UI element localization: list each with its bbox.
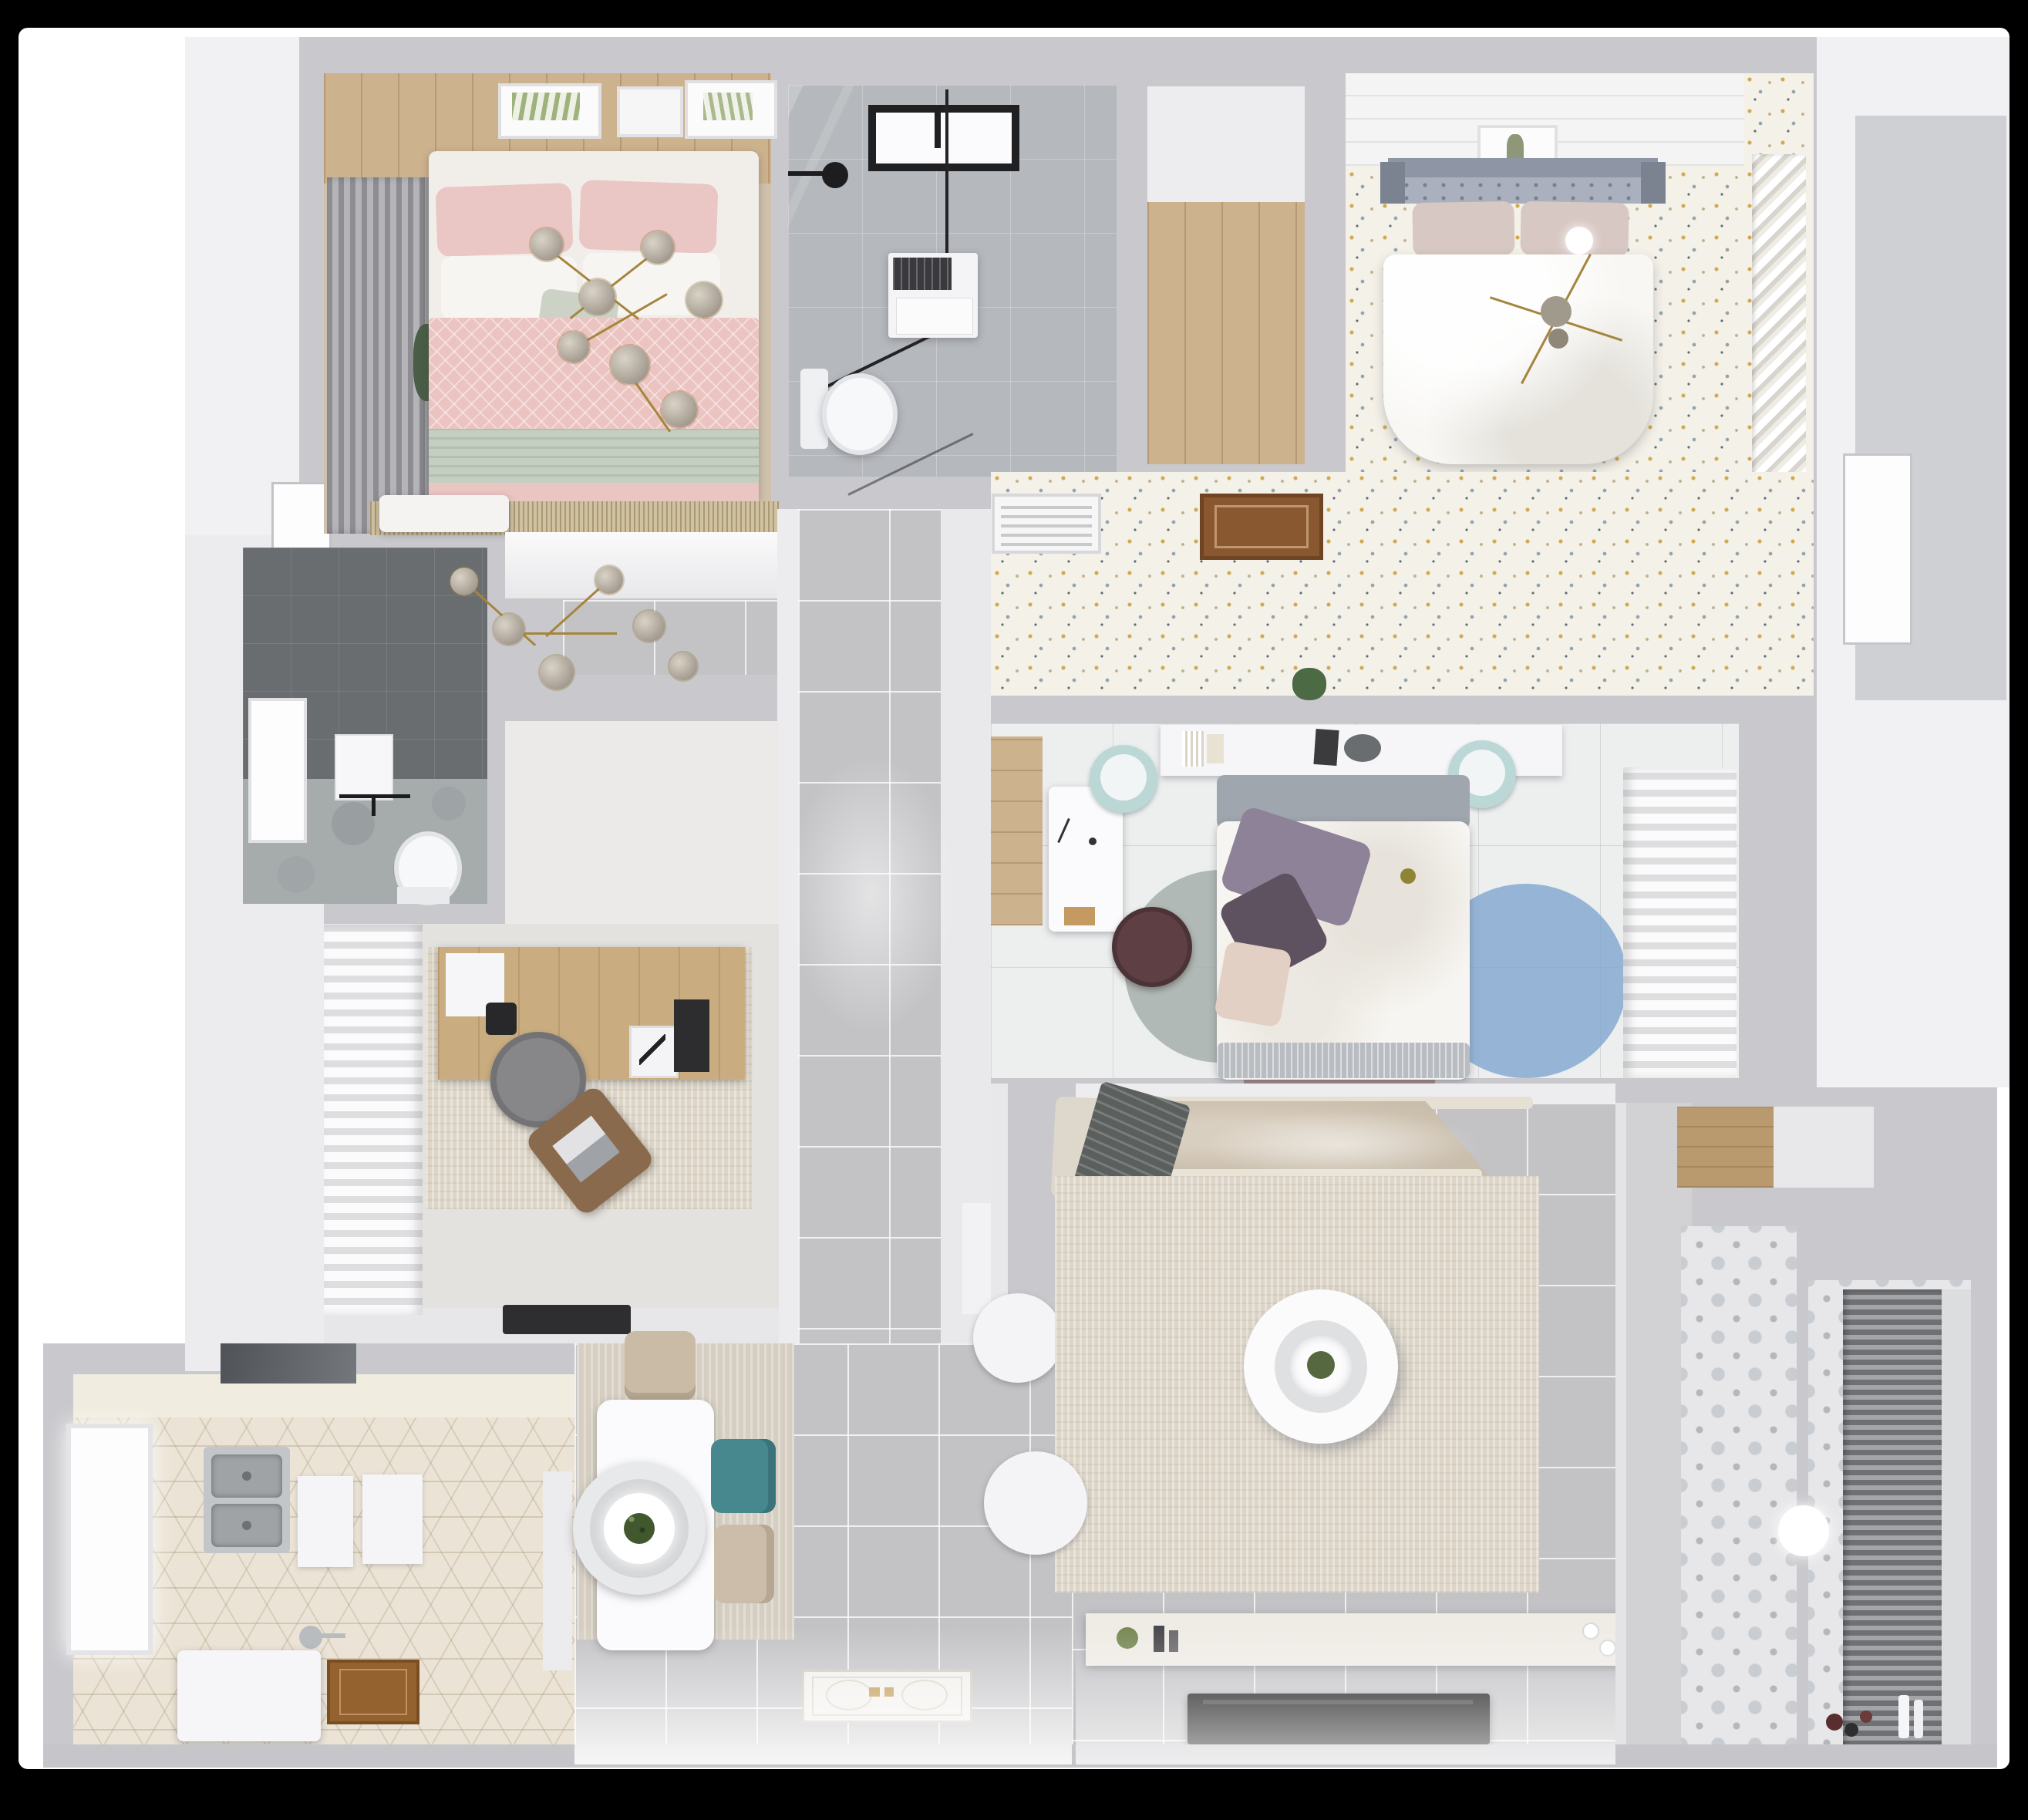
decor-green-plate xyxy=(1117,1627,1138,1649)
kitchen-window xyxy=(66,1424,153,1655)
bedroom-door-leaf xyxy=(962,1203,993,1314)
floor-motif-4 xyxy=(278,856,315,893)
vent-slats xyxy=(1001,501,1092,546)
decor-bottle-2 xyxy=(1169,1630,1178,1652)
washer-control-panel xyxy=(893,258,952,290)
wall-art-leaves xyxy=(512,93,580,120)
room-vestibule xyxy=(991,472,1814,696)
wall-art-frame-2 xyxy=(617,86,683,137)
duvet-gold-dot xyxy=(1400,868,1416,884)
blinds-light-edge xyxy=(1942,1289,1971,1764)
sink-drain-2 xyxy=(242,1521,251,1530)
venetian-blinds xyxy=(1843,1289,1942,1764)
desk-wood-box xyxy=(1064,907,1095,925)
bathroom-window xyxy=(868,105,1019,171)
middle-bed-foot xyxy=(1217,1043,1470,1078)
middle-wood-strip xyxy=(991,736,1043,925)
middle-plant xyxy=(1292,668,1326,700)
white-bottle-2 xyxy=(1914,1700,1923,1738)
sink-basin-2 xyxy=(211,1504,282,1547)
shower-fixture-drop xyxy=(372,794,376,816)
tv-reflection xyxy=(1203,1700,1473,1704)
shower-toilet-tank xyxy=(397,887,450,904)
shelf-bowl xyxy=(1344,734,1381,762)
dark-book xyxy=(1313,729,1339,766)
island-counter xyxy=(177,1650,321,1741)
entry-wood-floor xyxy=(1147,202,1305,464)
hatch-panel-line xyxy=(1214,505,1309,548)
exterior-door-leaf xyxy=(1843,453,1912,645)
camera-icon xyxy=(486,1003,517,1035)
round-coffee-table xyxy=(1244,1289,1398,1444)
door-handle-1 xyxy=(869,1687,880,1697)
washing-machine xyxy=(888,253,978,338)
door-ornament-left xyxy=(826,1680,872,1710)
washer-lid xyxy=(896,298,973,335)
teal-pouf-left xyxy=(1090,745,1157,813)
desk-dark-frame xyxy=(674,999,709,1072)
kitchen-door-leaf xyxy=(543,1471,572,1670)
sink-drain-1 xyxy=(242,1471,251,1481)
table-plant xyxy=(1307,1351,1335,1379)
pendant-plant xyxy=(624,1513,655,1544)
study-curtains xyxy=(324,924,423,1315)
bedroom1-bench xyxy=(379,495,509,532)
wall-art-frame-3 xyxy=(685,80,777,139)
kitchen-wood-mat xyxy=(327,1660,419,1724)
floor-motif-3 xyxy=(432,787,466,821)
desk-pen xyxy=(1057,818,1070,843)
desk-art-sketch xyxy=(639,1034,665,1065)
wood-floor-hatch xyxy=(1200,494,1323,560)
gold-chandelier-master xyxy=(1488,254,1627,386)
master-tufted-headboard xyxy=(1399,177,1647,204)
gold-chandelier-1 xyxy=(494,216,748,470)
window-mullion xyxy=(935,113,941,148)
hallway-wall-face-left xyxy=(777,509,798,1346)
entry-door-mat xyxy=(802,1670,972,1723)
flat-tv xyxy=(1187,1694,1490,1744)
white-pouf-upper xyxy=(973,1293,1063,1383)
desk-art-frame xyxy=(629,1026,679,1078)
balcony-round-lamp xyxy=(1778,1505,1829,1556)
wall-art-leaves-2 xyxy=(703,93,753,120)
tv-console xyxy=(1086,1613,1622,1666)
niche-wood-shelf xyxy=(1677,1107,1774,1188)
teal-chair xyxy=(711,1439,776,1513)
beige-chair-bottom xyxy=(714,1525,774,1603)
shower-arm xyxy=(788,171,825,176)
blush-pillow-left xyxy=(1412,201,1514,257)
shower-room-window xyxy=(248,698,307,843)
exterior-white-top-left xyxy=(185,37,299,535)
study-doormat xyxy=(503,1305,631,1334)
white-pouf-lower xyxy=(984,1451,1087,1555)
room-hallway xyxy=(798,509,941,1346)
desk-dot xyxy=(1089,838,1097,845)
wardrobe-curtains xyxy=(1623,767,1737,1078)
gold-chandelier-2 xyxy=(432,540,694,694)
door-ornament-right xyxy=(901,1680,948,1710)
floor-motif-1 xyxy=(332,802,375,845)
room-study xyxy=(505,721,779,924)
floor-plan-stage xyxy=(0,0,2028,1820)
toilet-bowl xyxy=(822,373,898,455)
maroon-chair xyxy=(1112,907,1192,987)
headboard-post-left xyxy=(1380,162,1405,204)
books-stack-1 xyxy=(1182,731,1204,767)
wall-art-frame-1 xyxy=(498,83,601,139)
pouf-top-left xyxy=(1100,754,1147,800)
toy-3 xyxy=(1860,1710,1872,1723)
room-entry-closet xyxy=(1147,86,1305,202)
white-bottle-1 xyxy=(1898,1695,1909,1738)
blush-throw-pillow xyxy=(1214,940,1292,1027)
door-handle-2 xyxy=(884,1687,894,1697)
headboard-post-right xyxy=(1641,162,1666,204)
outer-wall-bottom xyxy=(43,1744,1997,1768)
faucet-spout xyxy=(310,1633,345,1638)
range-hood xyxy=(221,1343,356,1384)
shower-head-icon xyxy=(822,162,848,188)
room-passage xyxy=(1681,1226,1797,1764)
vent-grille-icon xyxy=(992,494,1101,554)
master-sphere-lamp xyxy=(1565,227,1593,254)
double-sink xyxy=(204,1447,290,1553)
cutting-board-2 xyxy=(362,1475,423,1564)
toy-1 xyxy=(1826,1714,1843,1731)
decor-mug-2 xyxy=(1599,1640,1616,1657)
books-stack-2 xyxy=(1207,734,1224,763)
decor-mug-1 xyxy=(1582,1623,1599,1640)
wood-mat-line xyxy=(339,1669,407,1715)
shower-wall-frame xyxy=(335,734,393,800)
ring-pendant-lamp xyxy=(573,1462,706,1595)
toy-2 xyxy=(1844,1723,1858,1737)
niche-white-panel xyxy=(1774,1107,1874,1188)
cutting-board-1 xyxy=(298,1476,353,1567)
decor-bottle-1 xyxy=(1154,1626,1164,1652)
sink-basin-1 xyxy=(211,1454,282,1498)
beige-chair-top xyxy=(625,1331,696,1400)
